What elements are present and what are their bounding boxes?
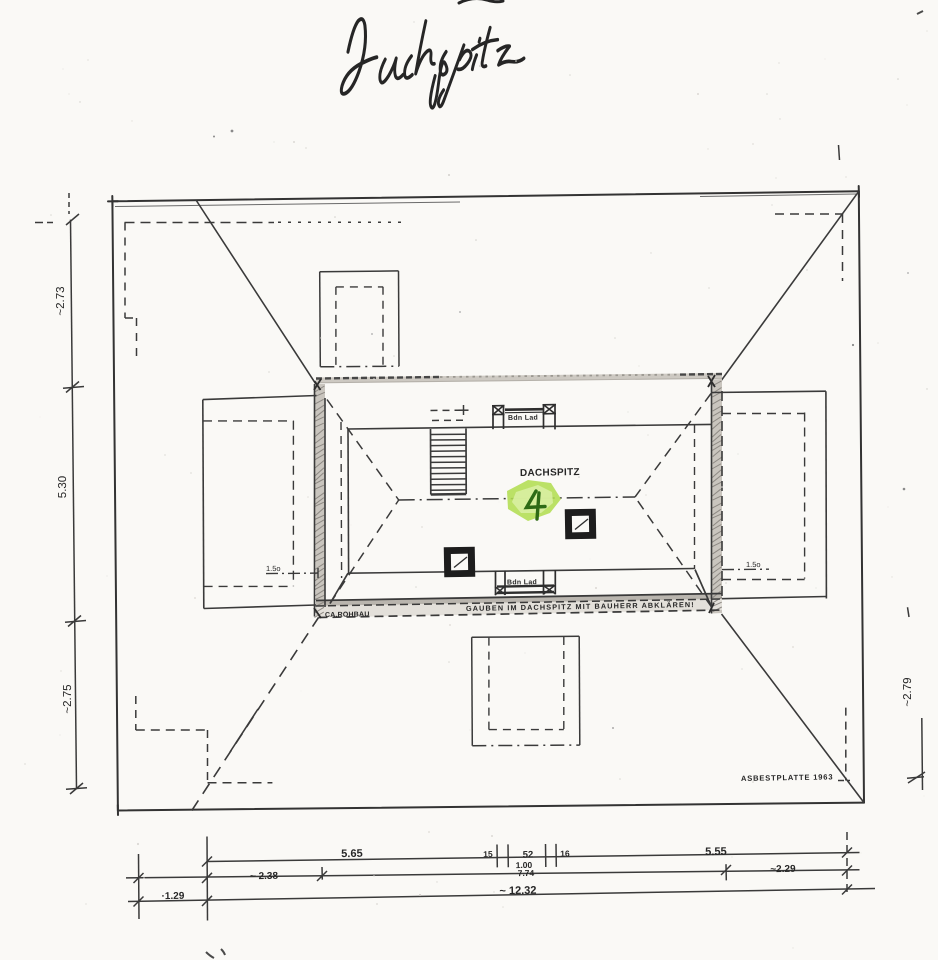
svg-text:16: 16: [560, 848, 570, 858]
svg-text:15: 15: [483, 849, 493, 859]
svg-text:Bdn Lad: Bdn Lad: [508, 414, 538, 422]
svg-text:5.30: 5.30: [57, 476, 69, 498]
svg-text:5.55: 5.55: [705, 846, 727, 858]
svg-text:Bdn Lad: Bdn Lad: [507, 578, 537, 586]
svg-text:CA.ROHBAU: CA.ROHBAU: [325, 611, 370, 619]
svg-text:~2.73: ~2.73: [55, 286, 67, 315]
svg-text:DACHSPITZ: DACHSPITZ: [520, 467, 580, 479]
svg-text:~ 12.32: ~ 12.32: [499, 885, 536, 898]
svg-text:·1.29: ·1.29: [161, 891, 184, 902]
svg-text:~2.29: ~2.29: [770, 864, 796, 875]
svg-text:1.5o: 1.5o: [746, 560, 761, 569]
svg-text:ASBESTPLATTE 1963: ASBESTPLATTE 1963: [741, 772, 834, 783]
svg-text:1.5o: 1.5o: [266, 564, 281, 573]
svg-text:5.65: 5.65: [341, 848, 363, 860]
svg-text:~2.79: ~2.79: [902, 677, 914, 706]
svg-text:~ 2.38: ~ 2.38: [250, 871, 279, 882]
svg-text:7.74: 7.74: [518, 868, 535, 878]
svg-text:~2.75: ~2.75: [62, 684, 74, 713]
